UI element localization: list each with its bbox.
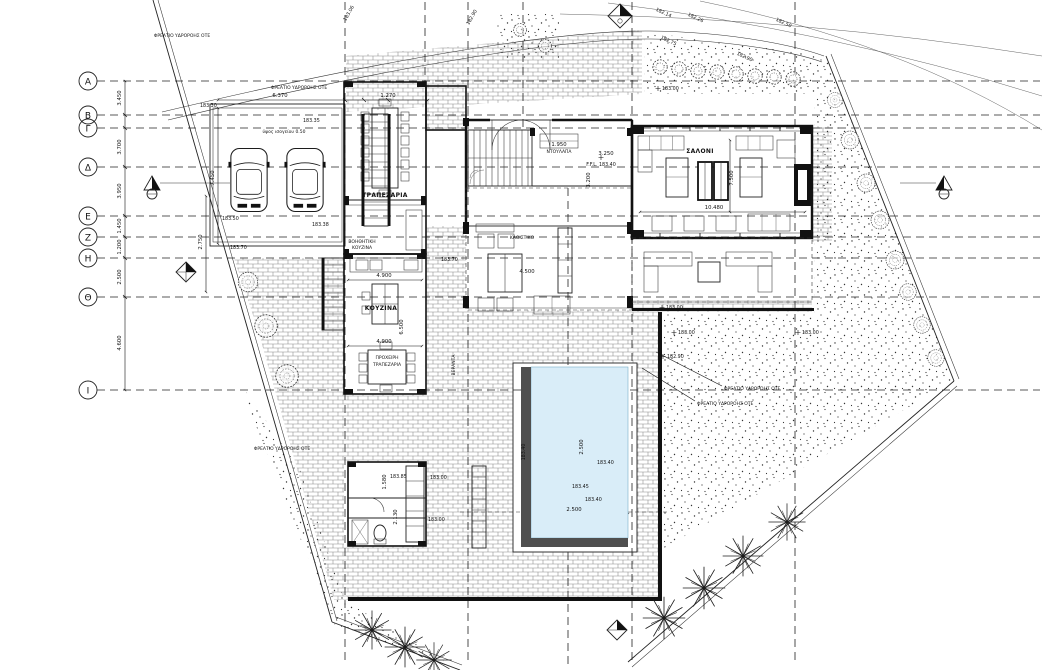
- spot-level-blue: 183.00: [428, 517, 445, 523]
- bush-icon: [672, 62, 686, 76]
- spot-level: 183.40: [597, 460, 614, 466]
- dim-text: 1.270: [380, 93, 396, 99]
- room-label-aux-kitchen: ΚΟΥΖΙΝΑ: [352, 245, 373, 251]
- bush-icon: [539, 40, 552, 53]
- dim-text: 4.900: [376, 339, 392, 345]
- car: [284, 149, 325, 212]
- room-label-casual-dining: ΠΡΟΧΕΙΡΗ: [376, 355, 399, 361]
- dim-text: 7.500: [729, 170, 735, 186]
- grid-label: Ε: [85, 213, 91, 223]
- room-label-dining: ΤΡΑΠΕΖΑΡΙΑ: [362, 192, 408, 199]
- dim-text: 3.950: [117, 183, 123, 199]
- fireplace: [794, 164, 812, 206]
- spot-level: 183.70: [230, 245, 247, 251]
- dim-text: 3.200: [586, 172, 592, 188]
- spot-level: 183.40: [585, 497, 602, 503]
- sitting-court: [463, 188, 633, 314]
- dim-text: 2.500: [117, 269, 123, 285]
- car: [228, 149, 269, 212]
- spot-level: 183.45: [572, 484, 589, 490]
- bush-icon: [514, 24, 527, 37]
- bush-icon: [729, 67, 743, 81]
- spot-level-blue: 183.70: [441, 257, 458, 263]
- dim-text: 1.200: [117, 239, 123, 255]
- spot-level: 182.90: [667, 354, 684, 360]
- dim-text: 4.500: [519, 269, 535, 275]
- dim-text: 2.500: [566, 507, 582, 513]
- dim-text: 7.450: [210, 170, 216, 186]
- dim-text: 3.700: [117, 139, 123, 155]
- level-marker-bottom-icon: [607, 620, 627, 640]
- interior-stair: [468, 130, 532, 186]
- grid-label: Α: [85, 78, 92, 88]
- bush-icon: [653, 60, 667, 74]
- note-drain: ΦΡΕΑΤΙΟ ΥΔΡΟΡΟΗΣ ΟΤΕ: [697, 401, 754, 407]
- tree-icon: [900, 284, 917, 301]
- contour-label: 182.90: [465, 9, 479, 27]
- label-wardrobe: ΝΤΟΥΛΑΠΑ: [546, 149, 572, 155]
- dim-text: 6.370: [272, 93, 288, 99]
- dim-text: 4.600: [117, 335, 123, 351]
- palm-icon: [723, 536, 764, 577]
- room-label-casual-dining: ΤΡΑΠΕΖΑΡΙΑ: [372, 362, 402, 368]
- level-marker-icon: [176, 262, 196, 282]
- grid-label: Δ: [85, 164, 92, 174]
- dim-text: 3.450: [117, 90, 123, 106]
- contour-label: 182.50: [775, 17, 793, 30]
- spot-level: 183.38: [312, 222, 329, 228]
- floor-plan-canvas: Α Β Γ Δ Ε Ζ Η Θ Ι: [0, 0, 1042, 670]
- coffee-tables: [698, 162, 728, 200]
- spot-level: 183.40: [521, 444, 527, 461]
- room-label-sitting: ΚΑΘΙΣΤΙΚΟ: [510, 235, 535, 241]
- section-marker-east-icon: [900, 176, 952, 199]
- contour-label: 182.26: [687, 12, 705, 25]
- section-marker-west-icon: [144, 176, 230, 199]
- tree-icon: [276, 365, 299, 388]
- spot-level: 183.00: [662, 86, 679, 92]
- bush-icon: [691, 64, 705, 78]
- tree-icon: [857, 174, 875, 192]
- contour-label: 183.06: [342, 5, 356, 23]
- living-furniture: [638, 136, 795, 231]
- grid-label: Θ: [84, 294, 91, 304]
- tree-icon: [914, 317, 931, 334]
- spot-level: 183.00: [666, 305, 683, 311]
- dim-text: 1.950: [551, 142, 567, 148]
- note-ffl: F.F.L. 183.40: [586, 162, 616, 168]
- room-label-living: ΣΑΛΟΝΙ: [686, 148, 714, 155]
- kitchen-island: [362, 284, 398, 324]
- tree-icon: [828, 93, 843, 108]
- bush-icon: [786, 72, 800, 86]
- tree-icon: [871, 211, 889, 229]
- room-label-veranda: ΒΕΡΑΝΤΑ: [451, 354, 457, 376]
- north-marker-icon: [608, 4, 632, 28]
- note-drain: ΦΡΕΑΤΙΟ ΥΔΡΟΡΟΗΣ ΟΤΕ: [154, 33, 211, 39]
- bush-icon: [767, 70, 781, 84]
- spot-level: 183.30: [200, 103, 217, 109]
- tree-icon: [928, 350, 945, 367]
- bush-icon: [748, 69, 762, 83]
- room-label-kitchen: ΚΟΥΖΙΝΑ: [365, 305, 397, 312]
- dim-text: 1.450: [117, 218, 123, 234]
- grid-label: Γ: [85, 125, 90, 135]
- spot-level: 183.00: [678, 330, 695, 336]
- dim-text: 2.500: [579, 439, 585, 455]
- grid-label: Ι: [87, 387, 90, 397]
- note-ground-height: ύψος ισογείου 0.50: [263, 128, 306, 135]
- room-label-aux-kitchen: ΒΟΗΘΗΤΙΚΗ: [348, 239, 375, 245]
- spot-level-blue: 183.00: [430, 475, 447, 481]
- grid-bubbles: Α Β Γ Δ Ε Ζ Η Θ Ι: [79, 72, 97, 399]
- note-drain: ΦΡΕΑΤΙΟ ΥΔΡΟΡΟΗΣ ΟΤΕ: [724, 386, 781, 392]
- grid-label: Η: [85, 255, 92, 265]
- tree-icon: [255, 315, 278, 338]
- palm-icon: [768, 503, 805, 540]
- palm-icon: [683, 567, 725, 609]
- grid-label: Ζ: [85, 234, 91, 244]
- note-drain: ΦΡΕΑΤΙΟ ΥΔΡΟΡΟΗΣ ΟΤΕ: [271, 85, 328, 91]
- dim-text: 2.130: [393, 509, 399, 525]
- dim-text: 6.500: [399, 319, 405, 335]
- dim-text: 4.900: [376, 273, 392, 279]
- grid-label: Β: [85, 112, 91, 122]
- outdoor-stair-west: [362, 114, 391, 226]
- dining-wing: [322, 82, 426, 330]
- dim-text: 2.750: [198, 234, 204, 250]
- palm-icon: [643, 597, 685, 639]
- spot-level: 183.85: [390, 474, 407, 480]
- pool-deck-bottom: [521, 538, 628, 547]
- dim-text: 3.250: [598, 151, 614, 157]
- spot-level: 183.50: [222, 216, 239, 222]
- dim-text: 1.580: [382, 474, 388, 490]
- spot-level: 183.35: [303, 118, 320, 124]
- tree-icon: [841, 131, 859, 149]
- site-plan-drawing: Α Β Γ Δ Ε Ζ Η Θ Ι: [0, 0, 1042, 670]
- bush-icon: [710, 65, 724, 79]
- spot-level: 183.00: [802, 330, 819, 336]
- tree-icon: [238, 272, 258, 292]
- note-drain: ΦΡΕΑΤΙΟ ΥΔΡΟΡΟΗΣ ΟΤΕ: [254, 446, 311, 452]
- dim-text: 10.480: [705, 205, 724, 211]
- tree-icon: [886, 251, 904, 269]
- living-wing: [632, 126, 812, 238]
